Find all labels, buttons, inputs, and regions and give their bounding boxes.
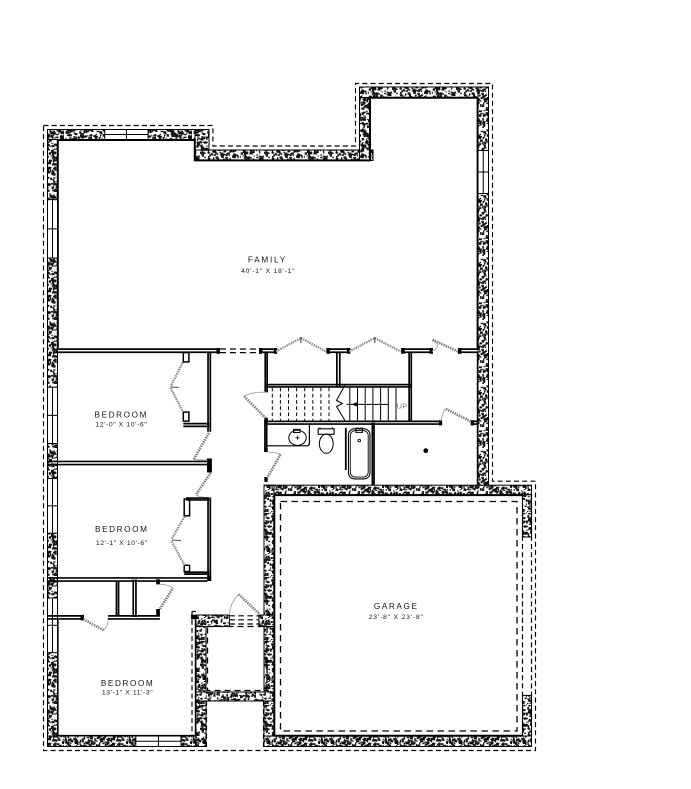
- svg-text:13'-1" X 11'-3": 13'-1" X 11'-3": [102, 690, 153, 697]
- svg-text:23'-8" X 23'-8": 23'-8" X 23'-8": [369, 614, 424, 621]
- svg-text:FAMILY: FAMILY: [248, 256, 287, 265]
- svg-text:BEDROOM: BEDROOM: [95, 525, 149, 534]
- svg-text:BEDROOM: BEDROOM: [101, 679, 155, 688]
- svg-text:40'-1" X 18'-1": 40'-1" X 18'-1": [241, 268, 295, 275]
- svg-text:12'-1" X 10'-6": 12'-1" X 10'-6": [96, 540, 148, 547]
- svg-text:12'-0" X 10'-6": 12'-0" X 10'-6": [95, 421, 147, 428]
- svg-text:BEDROOM: BEDROOM: [95, 410, 149, 419]
- svg-text:UP: UP: [397, 401, 408, 410]
- svg-text:GARAGE: GARAGE: [374, 602, 419, 611]
